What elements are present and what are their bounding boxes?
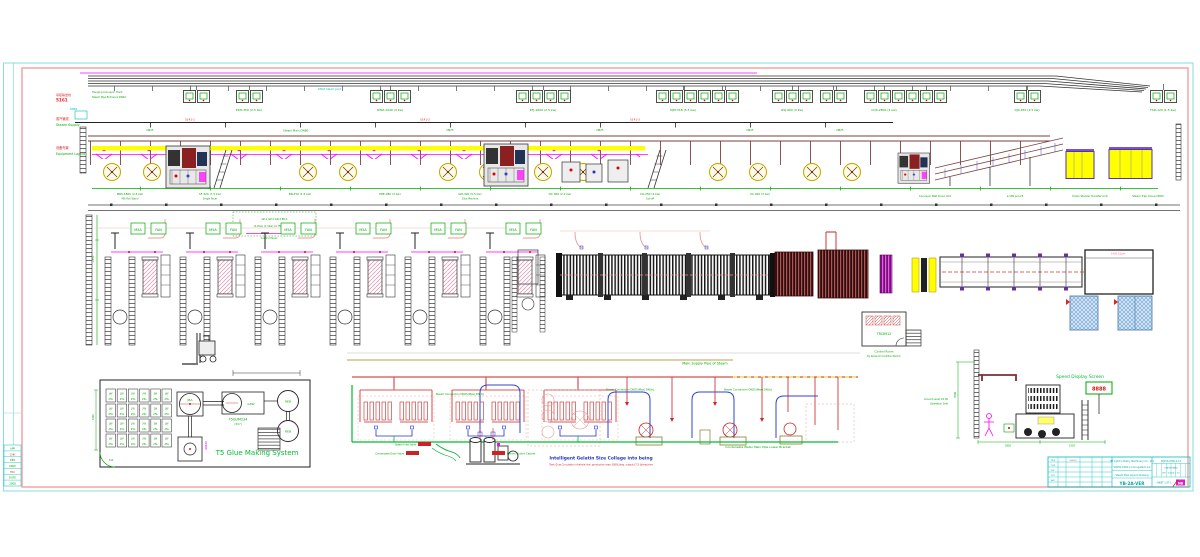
dim-label: GM-320 (5.5 kw) [458, 192, 481, 196]
cad-drawing-sheet: M5A FAN JW 25L [0, 0, 1200, 557]
glue-dim-marks [233, 370, 300, 376]
riser-arrowheads [625, 402, 764, 422]
station-label: GSJ-900 (3 kw) [781, 108, 803, 112]
frame-row: APP [10, 447, 15, 451]
dim-label: DC-300 (2.2 kw) [549, 192, 572, 196]
dim-name: Single Facer [203, 198, 218, 201]
conn-label-2: Steam Connection DN25(Max) DN(in) [606, 388, 654, 392]
dim-label: MRS-1800 (2.5 kw) [117, 192, 144, 196]
outlet-label: Condensate Drain Valve [375, 453, 404, 456]
rev-row: DES [1051, 460, 1056, 462]
dimension-labels: MRS-1800 (2.5 kw) SF-320 (7.5 kw) BR-250… [117, 192, 1164, 201]
logo-text: NB [1178, 481, 1184, 485]
rev-row: PRC [1051, 470, 1055, 472]
floor-separator [88, 203, 1180, 211]
rewinder-machine [1004, 385, 1074, 438]
side-label: Operation Side [930, 403, 948, 406]
steam-joint-box [75, 111, 87, 119]
glue-dim-v-text: 1800 [92, 414, 95, 420]
frame-row: 2008 [9, 482, 16, 486]
doc-number: WJ250-2500-2-14 [1161, 460, 1182, 463]
station-label: MJH-318 (5.5 kw) [670, 108, 696, 112]
revision-rows: DES CHK PRC STD APP 2008.5 [1051, 460, 1077, 482]
project-name: WJ250-2500-2 Corrugated Line [1114, 466, 1151, 469]
frame-row: DES [10, 458, 16, 462]
steam-tag: 5141-2 [420, 118, 430, 122]
station-label: TSD-120 (1.5 kw) [1149, 108, 1176, 112]
frame-row: CHK [10, 452, 16, 456]
station-label: DWZ-2240 (4 kw) [377, 108, 403, 112]
cad-canvas: M5A FAN JW 25L [0, 0, 1200, 557]
steam-tag: 5141-3 [630, 118, 640, 122]
speed-dim-v-text: 3500 [954, 391, 957, 398]
boiler-tanks [432, 428, 520, 464]
section3-code: 设备布置 [56, 145, 69, 150]
conn-label-1: Steam Connection DN25(Max) DN(in) [436, 392, 484, 396]
condensate-label: Condensate Water Main Pipe Lower Bracket [725, 445, 791, 449]
dim-label: CO-250 (4 kw) [640, 192, 660, 196]
steam-piping-diagram: Main Supply Pipe of Steam [347, 360, 858, 467]
pump-groups [608, 392, 818, 445]
takeoff-conveyor: 1400 S2pm [940, 250, 1153, 294]
glue-system-title: T5 Glue Making System [215, 449, 299, 457]
rev-row: CHK [1051, 465, 1056, 467]
drawing-number: YB-2A-VER [1119, 481, 1146, 486]
steam-taps [110, 123, 870, 128]
station-label: KFJ-1600 (2.5 kw) [530, 108, 556, 112]
control-room: TRC8912 Control Room By Series Or Condit… [862, 312, 921, 358]
frame-row: DATE [9, 476, 16, 480]
piping-blue-note: Intelligent Gelatin Size Collage into be… [549, 456, 652, 462]
section2-english: Steam Supply [56, 123, 80, 127]
sheet-row: SHEET 1 OF 1 [1157, 482, 1173, 485]
riser-tag: 40888 [204, 441, 208, 450]
conn-label-3: Steam Connection DN25(Max) DN(in) [724, 388, 772, 392]
hot-plate-sections [775, 250, 936, 298]
dim-name: Mill Roll Stand [122, 198, 139, 201]
speed-dim-2: 1520 [1069, 445, 1076, 448]
speed-title: Speed Display Screen [1056, 374, 1104, 380]
tap-label: DN25 [747, 128, 754, 132]
conveyor-cyan-note: DN40 Steam Joint [318, 87, 341, 91]
overhead-truss [88, 136, 1050, 141]
coating-units [105, 219, 545, 345]
dim-label: SF-320 (7.5 kw) [199, 192, 221, 196]
drawing-subtitle: Steam Pipe Layout Drawing [1115, 474, 1149, 477]
section1-number: 5161 [56, 98, 68, 103]
company-name: HB Light Industry Machinery Co., Ltd. [1110, 460, 1155, 463]
tank-label: GSW [247, 402, 254, 406]
station-label: EKH-350 (2.5 kw) [236, 108, 262, 112]
frame-row: DRW [9, 464, 16, 468]
dim-name: Glue Machine [462, 198, 479, 201]
right-label: Down Stacker Transfer Unit [1072, 194, 1107, 198]
blue-loop-1 [480, 385, 520, 433]
tap-label: DN25 [447, 128, 454, 132]
led-sign: 8888 [1086, 382, 1112, 414]
glue-mixer: JBA [177, 392, 203, 416]
cabinet-label: Electric Control Cabinet [507, 453, 535, 456]
frame-row: TRC [10, 470, 15, 474]
stage-row-2: WT · SCALE 1:50 [1162, 472, 1180, 475]
left-wall-column-2 [86, 215, 92, 345]
section1-note2: Steam Pipe Entrance DN40 [92, 95, 126, 99]
steam-supply-line: Steam Main DN80 DN25 DN25 DN25 DN25 DN25… [75, 118, 893, 133]
vessel-bottom-label: REB [285, 430, 291, 434]
station-labels: EKH-350 (2.5 kw) DWZ-2240 (4 kw) KFJ-160… [236, 108, 1176, 112]
left-wall-column [80, 127, 86, 173]
glue-pipe-h [203, 402, 224, 406]
tank-code: T5GUM234 [228, 418, 248, 422]
right-wall-column [1176, 124, 1181, 180]
steam-tap-labels: DN25 DN25 DN25 DN25 DN25 [147, 128, 844, 132]
vertical-dim-text: 2350 [91, 255, 95, 262]
speed-dim-1: 2850 [1005, 445, 1012, 448]
pail-grid [106, 389, 172, 447]
glue-tank: GSW T5GUM234 (3m³) [222, 392, 264, 426]
section2-code: 蒸汽管线 [56, 116, 70, 121]
dim-name: Cut-off [646, 198, 654, 201]
hanging-box-groups [184, 91, 1177, 103]
equipment-layout-row: MRS-1800 (2.5 kw) SF-320 (7.5 kw) BR-250… [80, 124, 1181, 201]
inlet-label: Steam Inlet Valve [395, 444, 417, 447]
tap-label: DN25 [147, 128, 154, 132]
rev-row: STD [1051, 475, 1055, 477]
tap-label: DN25 [597, 128, 604, 132]
stacker-units [1066, 147, 1152, 179]
station-label: CQS-2800 (4 kw) [871, 108, 896, 112]
steam-tag: 5141-1 [185, 118, 195, 122]
vessel-top-label: REB [285, 400, 291, 404]
section1-code: 吊挂输送线 [56, 92, 71, 97]
legend-row1: GP-1 GP-2 GR-3 PR-4 [262, 217, 288, 221]
panel-label: Control Panel [261, 236, 278, 240]
dim-label: BR-250 (1.5 kw) [289, 192, 311, 196]
rev-date: 2008.5 [1070, 460, 1078, 462]
dimension-ticks [92, 187, 1158, 191]
access-ladder-right [1082, 400, 1088, 440]
overhead-conveyor: EKH-350 (2.5 kw) DWZ-2240 (4 kw) KFJ-160… [80, 73, 1177, 112]
dim-label: PRE-280 (4 kw) [379, 192, 400, 196]
stage-row-1: STAGE MARK [1164, 467, 1178, 470]
glue-drop-station: 40888 [178, 416, 208, 461]
right-label: Conveyor Belt Drive Unit [919, 194, 951, 198]
dim-label: SC-920 (3 kw) [750, 192, 770, 196]
speed-dim-bottom [978, 440, 1105, 444]
glue-making-system: 1800 JBA GSW T5GUM234 (3m³) REB [92, 370, 310, 467]
operator-figure [984, 414, 994, 437]
wall-bracket [978, 375, 1016, 381]
vertical-dim-line [95, 215, 99, 345]
steam-dn-label: DN80 [70, 107, 78, 111]
mixer-label: JBA [187, 398, 194, 402]
control-room-line2: By Series Or Condition Electric [867, 355, 901, 358]
piping-red-note: Tank Glue Circulation of whole line, pro… [549, 464, 653, 467]
station-label: DJX-450 (2.5 kw) [1014, 108, 1039, 112]
speed-display-section: 3500 Ground Level ±0.00 Operation Side S… [924, 350, 1112, 448]
conveyor-tag: 1400 S2pm [1111, 252, 1126, 256]
blue-pads [1066, 296, 1152, 330]
faint-equipment [528, 390, 854, 446]
dryer-section [556, 231, 775, 300]
title-block: DES CHK PRC STD APP 2008.5 HB Light Indu… [1048, 457, 1190, 487]
frame-info-table: APP CHK DES DRW TRC DATE 2008 [4, 445, 21, 486]
led-readout: 8888 [1092, 387, 1106, 393]
control-room-line1: Control Room [875, 350, 894, 354]
forklift [182, 333, 216, 364]
tap-label: DN25 [837, 128, 844, 132]
wall-column-3 [974, 350, 979, 438]
second-floor-row: 2350 GP-1 GP-2 GR-3 PR-4 (2.2kw) (1.5kw)… [86, 212, 1153, 364]
piping-title: Main Supply Pipe of Steam [682, 362, 728, 366]
condensate-main [352, 385, 838, 442]
right-label: a-500 pcs×8 [1007, 194, 1024, 198]
right-label: Steam Trap Group DN25 [1132, 194, 1164, 198]
control-room-tag: TRC8912 [876, 332, 891, 336]
speed-dim-v [956, 362, 975, 438]
rev-row: APP [1051, 479, 1056, 482]
ground-label: Ground Level ±0.00 [924, 398, 948, 401]
corner-arc-label: R15 [109, 459, 114, 462]
steam-main-label: Steam Main DN80 [283, 129, 309, 133]
glue-stairs [258, 428, 280, 450]
tank-note: (3m³) [234, 422, 241, 426]
